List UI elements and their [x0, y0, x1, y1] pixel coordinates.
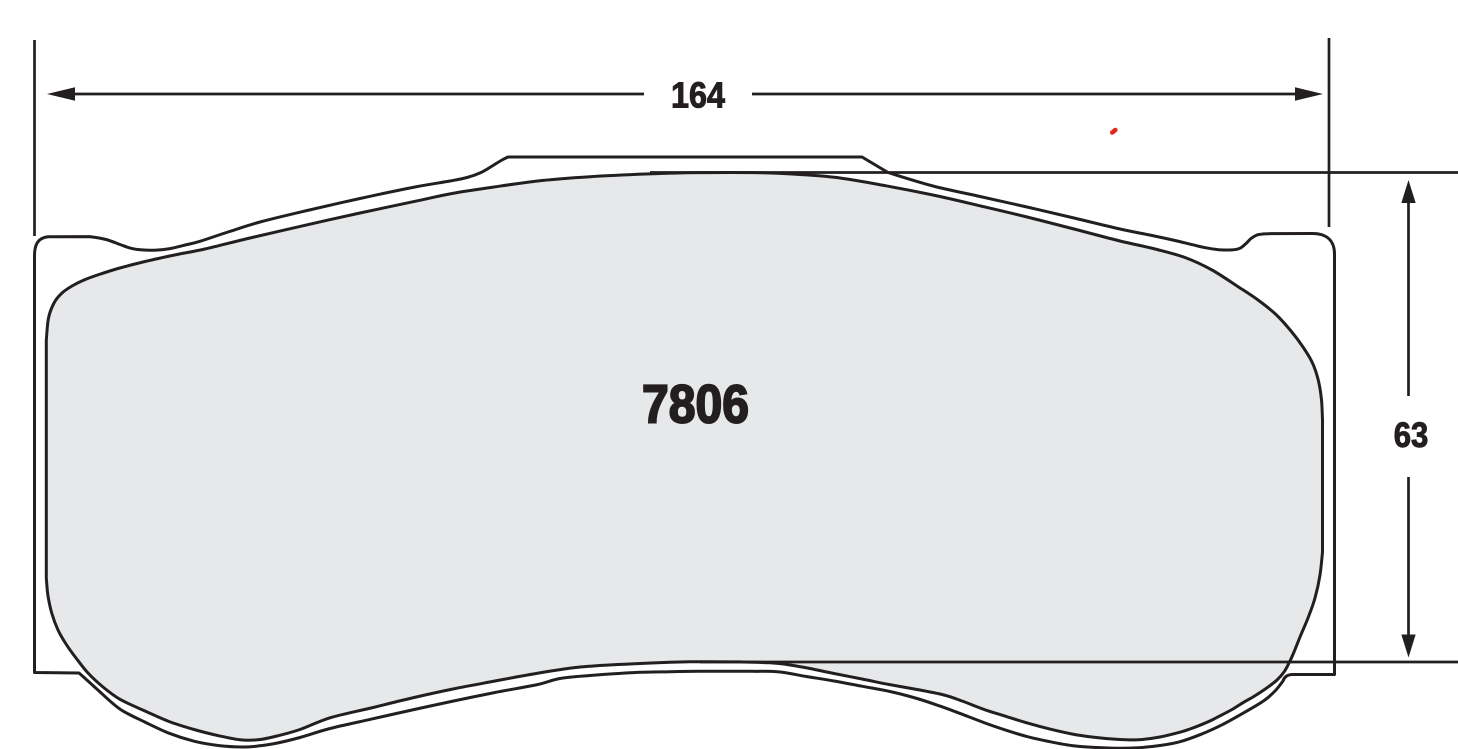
svg-text:164: 164	[671, 75, 725, 116]
svg-text:7806: 7806	[642, 375, 749, 435]
svg-text:63: 63	[1394, 416, 1429, 455]
